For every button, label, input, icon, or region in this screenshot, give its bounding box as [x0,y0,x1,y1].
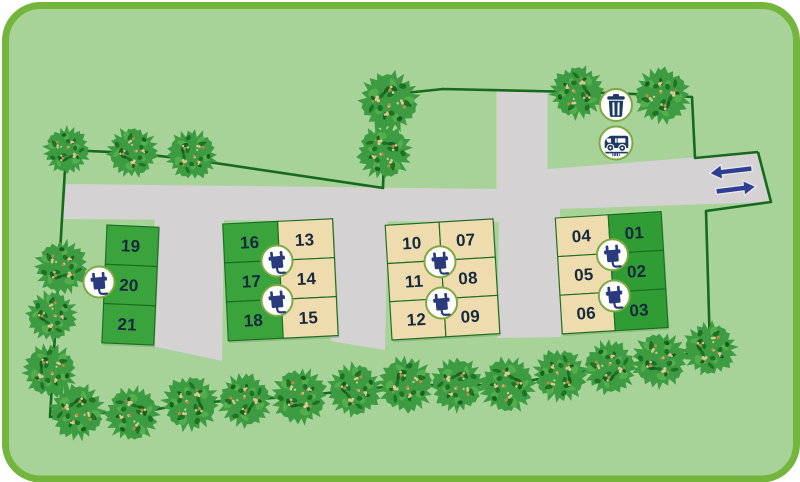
svg-text:14: 14 [296,269,317,289]
svg-text:15: 15 [298,308,318,328]
svg-text:21: 21 [117,315,137,335]
svg-text:09: 09 [460,307,480,327]
svg-text:02: 02 [626,262,646,282]
svg-text:08: 08 [458,268,478,288]
svg-text:04: 04 [571,226,592,246]
svg-text:18: 18 [243,311,263,331]
svg-text:17: 17 [241,272,261,292]
svg-text:05: 05 [574,265,594,285]
svg-text:01: 01 [624,223,644,243]
svg-text:12: 12 [406,310,426,330]
svg-text:11: 11 [404,272,423,292]
svg-text:13: 13 [294,230,314,250]
svg-text:07: 07 [456,230,476,250]
svg-text:20: 20 [119,276,139,296]
svg-text:19: 19 [121,236,141,256]
svg-text:06: 06 [576,303,596,323]
svg-text:03: 03 [629,300,649,320]
svg-text:16: 16 [240,233,260,253]
svg-text:10: 10 [402,233,422,253]
